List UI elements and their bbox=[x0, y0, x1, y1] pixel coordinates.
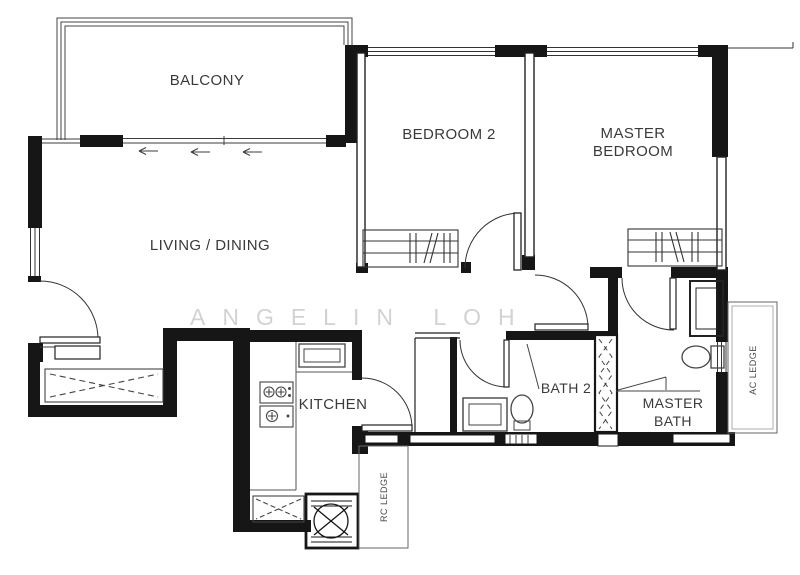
master-bath-door-swing bbox=[622, 278, 676, 330]
bedroom2-door-swing bbox=[465, 213, 521, 270]
room-label-master-bedroom: MASTER BEDROOM bbox=[593, 125, 673, 161]
windows bbox=[31, 42, 794, 372]
kitchen-counter bbox=[250, 342, 352, 490]
kitchen-door-swing bbox=[362, 378, 412, 431]
label-rc-ledge: RC LEDGE bbox=[379, 472, 389, 522]
bath2-toilet bbox=[511, 395, 533, 430]
bedroom2-wardrobe bbox=[363, 230, 458, 267]
kitchen-service-hatch bbox=[253, 496, 304, 522]
floor-plan: ANGELIN LOH bbox=[0, 0, 800, 575]
room-label-master-bath-line1: MASTER bbox=[643, 394, 704, 412]
label-ac-ledge: AC LEDGE bbox=[748, 345, 758, 395]
bath2-shower-screen bbox=[527, 344, 539, 389]
master-bath-vanity bbox=[616, 377, 700, 391]
room-label-master-bath: MASTER BATH bbox=[643, 394, 704, 430]
room-label-master-bedroom-line2: BEDROOM bbox=[593, 143, 673, 161]
planter-hatch bbox=[45, 369, 163, 402]
room-label-bath2: BATH 2 bbox=[541, 379, 591, 397]
partition-walls bbox=[357, 53, 726, 270]
room-label-balcony: BALCONY bbox=[170, 72, 245, 90]
kitchen-hob bbox=[260, 382, 293, 427]
bath2-door-swing bbox=[460, 340, 509, 387]
service-shaft-hatch bbox=[595, 335, 617, 432]
room-label-kitchen: KITCHEN bbox=[299, 396, 368, 414]
room-label-living-dining: LIVING / DINING bbox=[150, 237, 270, 255]
master-bedroom-door-swing bbox=[535, 275, 588, 330]
bath2-sink bbox=[463, 398, 507, 431]
floorplan-drawing bbox=[0, 0, 800, 575]
entrance-door-swing bbox=[40, 281, 100, 359]
walls bbox=[28, 45, 735, 532]
room-label-master-bath-line2: BATH bbox=[643, 412, 704, 430]
master-bedroom-wardrobe bbox=[628, 229, 722, 266]
room-label-bedroom2: BEDROOM 2 bbox=[402, 126, 496, 144]
washing-machine bbox=[306, 494, 358, 548]
room-label-master-bedroom-line1: MASTER bbox=[593, 125, 673, 143]
kitchen-sink bbox=[299, 344, 345, 367]
